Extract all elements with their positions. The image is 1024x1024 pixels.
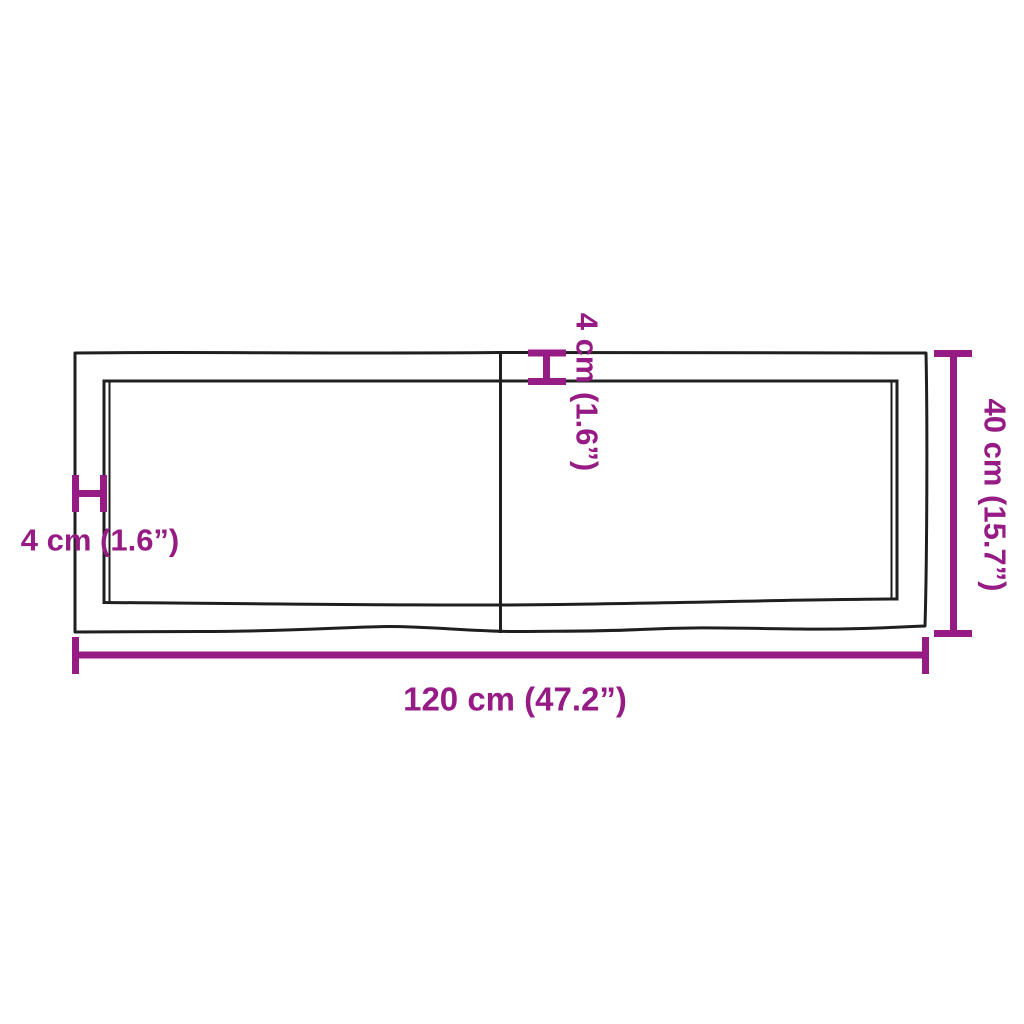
width-dimension-label: 120 cm (47.2”)	[403, 683, 627, 716]
height-dimension-line	[934, 353, 972, 634]
top-thickness-label: 4 cm (1.6”)	[572, 313, 603, 472]
height-dimension-label: 40 cm (15.7”)	[980, 399, 1011, 592]
board-top-view	[75, 352, 927, 632]
dimension-diagram: 120 cm (47.2”) 40 cm (15.7”) 4 cm (1.6”)…	[0, 0, 1024, 1024]
width-dimension-line	[75, 637, 926, 674]
diagram-canvas	[0, 0, 1024, 1024]
left-thickness-label: 4 cm (1.6”)	[21, 525, 180, 556]
